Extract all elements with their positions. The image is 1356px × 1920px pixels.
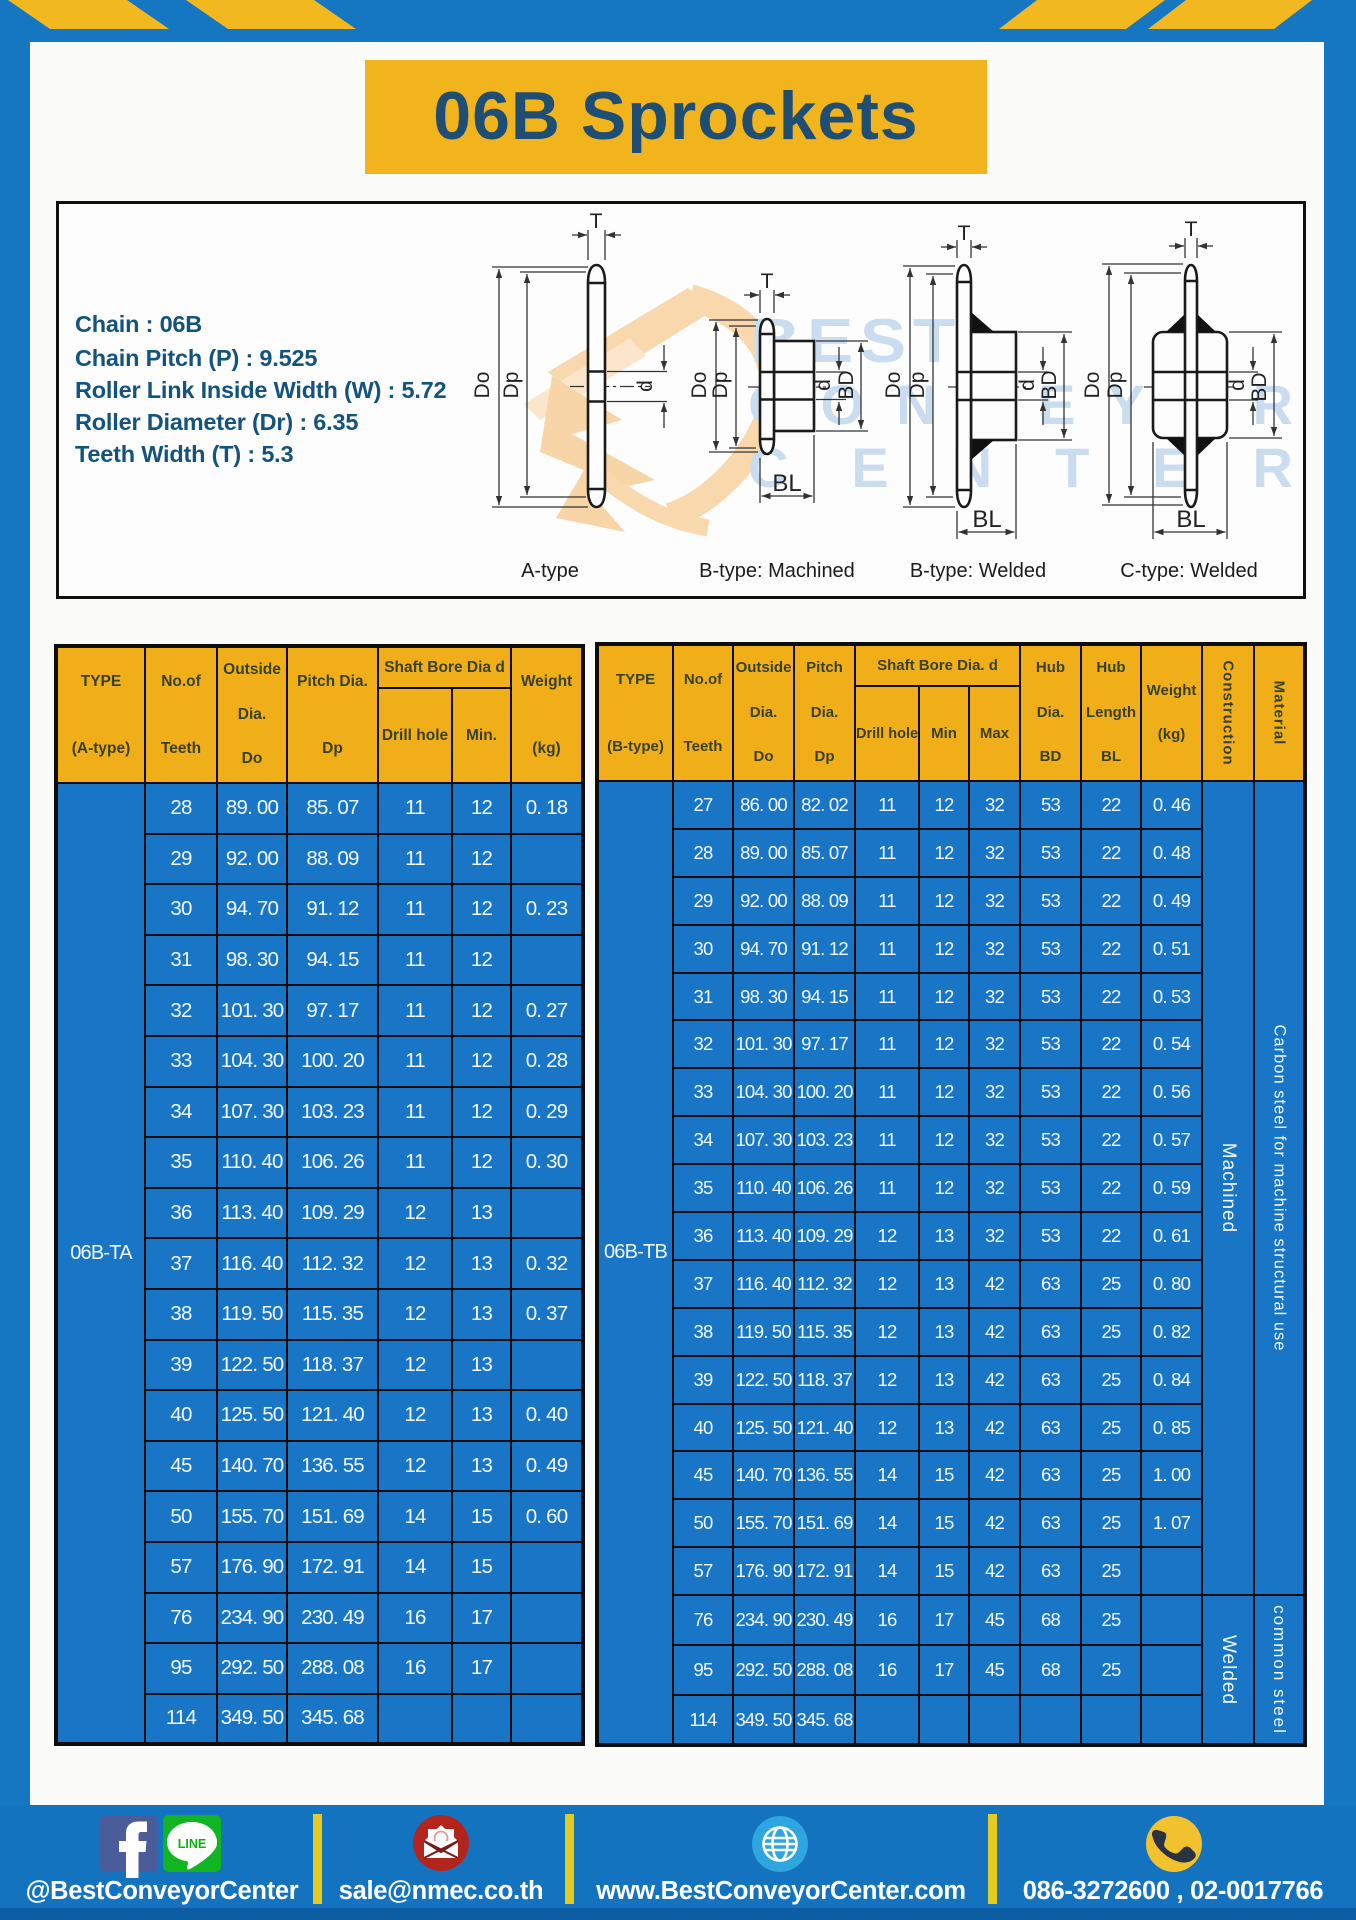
svg-text:Do: Do — [1081, 372, 1104, 399]
svg-text:BD: BD — [1248, 372, 1271, 401]
svg-text:d: d — [634, 380, 657, 392]
svg-text:CENTER: CENTER — [748, 436, 1293, 499]
svg-text:C-type: Welded: C-type: Welded — [1120, 560, 1257, 582]
svg-text:B-type: Welded: B-type: Welded — [910, 560, 1046, 582]
svg-text:BL: BL — [772, 470, 801, 497]
svg-text:d: d — [812, 379, 835, 391]
svg-text:Dp: Dp — [709, 372, 732, 399]
svg-text:BL: BL — [1176, 506, 1205, 533]
svg-text:T: T — [958, 222, 971, 245]
svg-text:www.BestConveyorCenter.com: www.BestConveyorCenter.com — [595, 1877, 966, 1905]
svg-text:Do: Do — [471, 372, 494, 399]
svg-text:Chain Pitch (P) : 9.525: Chain Pitch (P) : 9.525 — [75, 345, 317, 371]
svg-text:BD: BD — [1038, 370, 1061, 399]
svg-text:A-type: A-type — [521, 560, 579, 582]
svg-text:Dp: Dp — [1104, 372, 1127, 399]
svg-text:sale@nmec.co.th: sale@nmec.co.th — [339, 1877, 544, 1905]
svg-text:Teeth Width (T) : 5.3: Teeth Width (T) : 5.3 — [75, 441, 294, 467]
svg-text:Roller Link Inside Width (W): Roller Link Inside Width (W) : 5.72 — [75, 377, 447, 403]
svg-text:B-type: Machined: B-type: Machined — [699, 560, 855, 582]
svg-text:T: T — [761, 270, 774, 293]
svg-text:T: T — [1185, 218, 1198, 241]
svg-text:Do: Do — [882, 372, 905, 399]
svg-text:BD: BD — [835, 370, 858, 399]
svg-text:Do: Do — [688, 372, 711, 399]
svg-text:Roller Diameter (Dr) : 6.35: Roller Diameter (Dr) : 6.35 — [75, 409, 358, 435]
svg-text:086-3272600 , 02-0017766: 086-3272600 , 02-0017766 — [1023, 1877, 1324, 1905]
svg-text:BL: BL — [972, 506, 1001, 533]
svg-text:d: d — [1226, 379, 1249, 391]
svg-text:Dp: Dp — [500, 372, 523, 399]
svg-text:Chain : 06B: Chain : 06B — [75, 311, 202, 337]
svg-text:T: T — [590, 210, 603, 233]
svg-text:d: d — [1016, 379, 1039, 391]
svg-text:@BestConveyorCenter: @BestConveyorCenter — [26, 1877, 299, 1905]
svg-text:LINE: LINE — [178, 1837, 206, 1851]
svg-text:Dp: Dp — [906, 372, 929, 399]
